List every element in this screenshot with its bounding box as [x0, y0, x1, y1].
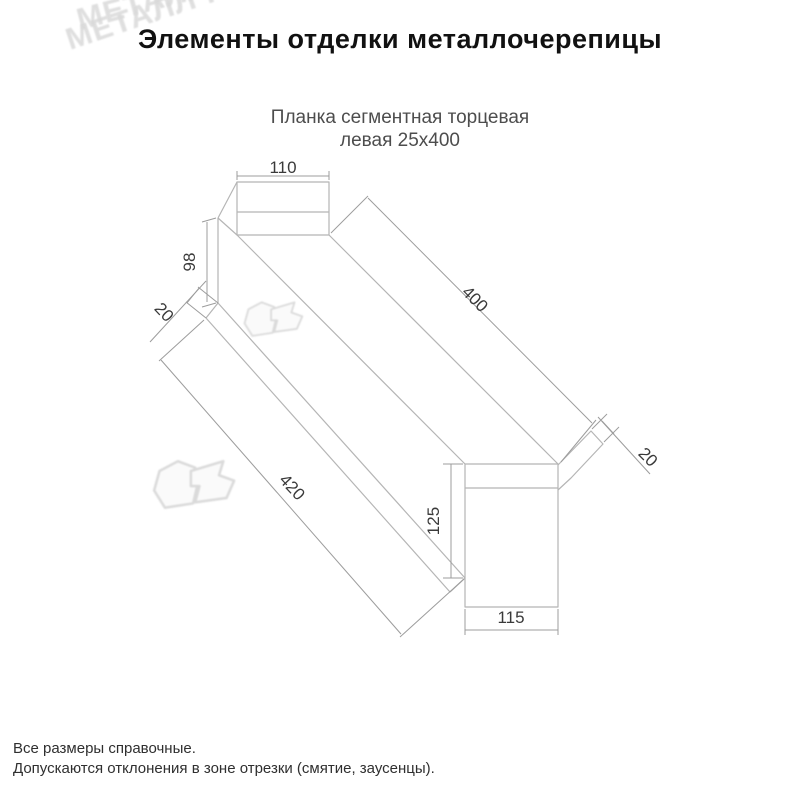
watermark-upper: МЕТАЛЛ ПРОФИЛЬ: [61, 0, 368, 336]
dim-length-bottom: 420: [275, 470, 308, 504]
brand-logo-icon: [154, 461, 234, 507]
near-face: [465, 464, 558, 607]
dimension-lines: [150, 171, 650, 637]
dimension-labels: 110 98 20 400 420 125 115 20: [151, 158, 662, 627]
profile-outline: [206, 182, 603, 607]
dim-hem-near: 20: [634, 444, 661, 471]
footer-notes: Все размеры справочные. Допускаются откл…: [13, 739, 773, 779]
technical-drawing: МЕТАЛЛ ПРОФИЛЬ МЕТАЛЛ ПРОФИЛЬ: [0, 0, 800, 800]
dim-length-top: 400: [458, 282, 491, 315]
near-hem-tab: [558, 431, 603, 490]
brand-logo-icon: [245, 302, 303, 336]
footer-note-1: Все размеры справочные.: [13, 739, 773, 759]
far-flange-face: [237, 182, 329, 235]
watermark-lower: МЕТАЛЛ ПРОФИЛЬ: [73, 0, 383, 508]
dim-hem-far: 20: [151, 299, 178, 326]
dim-face-width-near: 115: [497, 608, 524, 627]
dim-face-height-near: 125: [424, 507, 443, 535]
footer-note-2: Допускаются отклонения в зоне отрезки (с…: [13, 759, 773, 779]
fold-line-bottom: [218, 303, 465, 578]
top-outer-edge: [329, 235, 558, 464]
drawing-area: МЕТАЛЛ ПРОФИЛЬ МЕТАЛЛ ПРОФИЛЬ: [0, 0, 800, 800]
dim-face-height-far: 98: [180, 253, 199, 272]
far-flange-edge: [218, 182, 237, 218]
far-face-top-edge: [218, 218, 237, 235]
fold-line-top: [237, 235, 465, 464]
dim-flange-width-far: 110: [269, 158, 296, 177]
